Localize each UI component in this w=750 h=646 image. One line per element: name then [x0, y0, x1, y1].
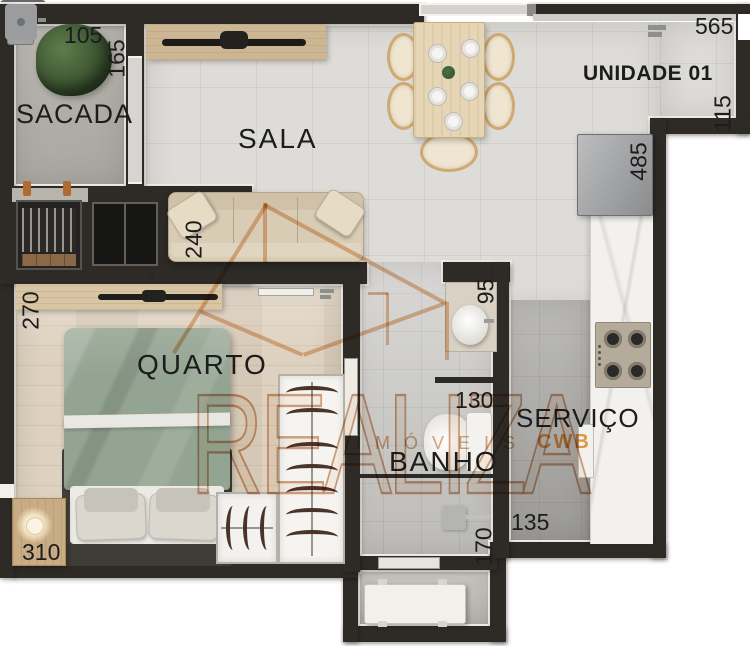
dim-130: 130: [455, 389, 493, 412]
plate-icon: [444, 112, 463, 131]
dark-window-mullion: [124, 204, 126, 264]
shelf-bar: [435, 377, 495, 383]
left-wall-cap: [0, 484, 14, 498]
wardrobe: [278, 374, 345, 564]
hanger-icon: [286, 464, 338, 478]
plate-icon: [461, 39, 480, 58]
tv-icon: [220, 31, 248, 49]
cooktop-icon: [595, 322, 651, 388]
stove-dial: [598, 363, 601, 366]
utility-bench-tab: [378, 621, 387, 627]
dim-270: 270: [20, 287, 43, 335]
stove-dial: [598, 351, 601, 354]
grill-wood-shelf: [22, 254, 76, 266]
hanger-icon: [286, 530, 338, 544]
dim-135: 135: [511, 511, 549, 534]
faucet-icon: [38, 18, 46, 22]
dim-170: 170: [473, 523, 496, 571]
pillow-icon: [156, 488, 210, 512]
grill-knob-icon: [63, 181, 71, 196]
dim-105: 105: [64, 24, 102, 47]
table-lamp-icon: [26, 517, 44, 535]
shower-arm: [466, 515, 490, 519]
dim-95: 95: [475, 273, 498, 311]
dining-chair-icon: [420, 132, 478, 172]
sofa-cushion-line: [297, 197, 298, 249]
burner-icon: [604, 330, 622, 348]
burner-icon: [604, 362, 622, 380]
hanger-icon: [286, 486, 338, 500]
utility-bench-tab: [438, 579, 447, 585]
burner-icon: [628, 362, 646, 380]
wall-segment: [153, 262, 367, 284]
window-top-icon: [419, 3, 531, 16]
wall-segment: [12, 564, 358, 578]
dim-485: 485: [628, 138, 651, 186]
dining-chair-icon: [482, 33, 515, 81]
utility-bench: [364, 584, 466, 624]
entry-door-handle-icon: [648, 32, 662, 37]
door-handle-icon: [320, 295, 331, 299]
dim-565: 565: [695, 15, 733, 38]
pillow-icon: [84, 488, 138, 512]
closet-rack: [216, 492, 278, 564]
room-label-sala: SALA: [238, 125, 318, 153]
dim-115: 115: [712, 90, 735, 138]
right-wall-gap: [738, 14, 750, 40]
drain-icon: [17, 18, 25, 26]
dim-165: 165: [106, 35, 129, 83]
room-label-banho: BANHO: [389, 448, 499, 476]
floorplan-unidade-01: SACADA SALA QUARTO BANHO SERVIÇO UNIDADE…: [0, 0, 750, 646]
room-label-quarto: QUARTO: [137, 351, 268, 379]
laundry-window-icon: [378, 557, 440, 569]
faucet-icon: [484, 319, 494, 323]
plate-icon: [460, 82, 479, 101]
hanger-icon: [243, 506, 257, 550]
hanger-icon: [260, 506, 274, 550]
entry-door-handle-icon: [648, 25, 666, 30]
hanger-icon: [286, 508, 338, 522]
stove-dial: [598, 345, 601, 348]
plate-icon: [428, 44, 447, 63]
sliding-door-icon: [344, 358, 358, 436]
grill-grate: [22, 208, 76, 252]
dim-240: 240: [183, 216, 206, 264]
tv-icon: [142, 290, 166, 302]
bed-footboard: [62, 544, 232, 566]
table-plant-icon: [442, 66, 455, 79]
dining-chair-icon: [482, 82, 515, 130]
hanger-icon: [286, 386, 338, 400]
utility-bench-tab: [378, 579, 387, 585]
shower-head-icon: [442, 506, 466, 530]
stove-dial: [598, 357, 601, 360]
door-handle-icon: [320, 289, 334, 293]
plate-icon: [428, 87, 447, 106]
wall-segment: [343, 626, 506, 642]
sofa-cushion-line: [233, 197, 234, 249]
hanger-icon: [286, 442, 338, 456]
bathroom-sink-icon: [452, 305, 488, 345]
wall-segment: [0, 4, 424, 24]
grill-knob-icon: [23, 181, 31, 196]
unit-title: UNIDADE 01: [583, 63, 713, 84]
utility-bench-tab: [438, 621, 447, 627]
wall-segment: [490, 542, 666, 558]
dim-310: 310: [22, 541, 60, 564]
room-label-servico: SERVIÇO: [516, 405, 640, 431]
quarto-sliding-door-rail: [258, 288, 314, 296]
burner-icon: [628, 330, 646, 348]
hanger-icon: [226, 506, 240, 550]
hanger-icon: [286, 408, 338, 422]
room-label-sacada: SACADA: [16, 101, 133, 128]
